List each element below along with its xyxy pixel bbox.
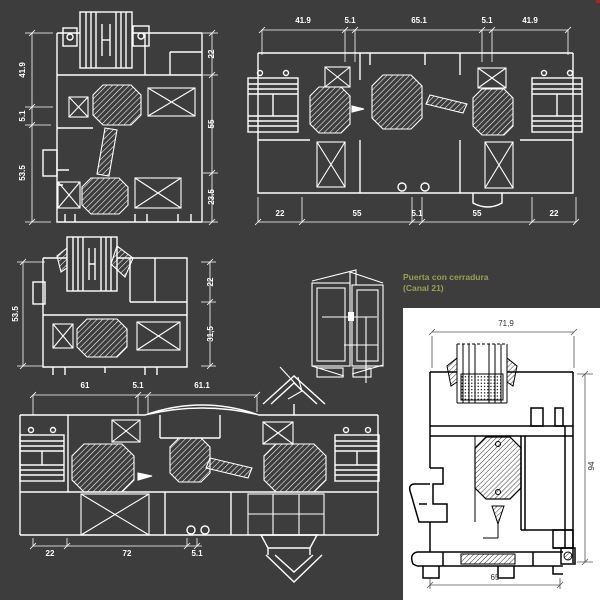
note-line-1: Puerta con cerradura <box>403 272 489 283</box>
dim-label: 65 <box>491 574 500 582</box>
profile-section-top-left-art <box>5 0 220 235</box>
dim-label: 61.1 <box>194 382 210 390</box>
note-line-2: (Canal 21) <box>403 283 489 294</box>
dim-label: 5.1 <box>344 17 355 25</box>
note-text: Puerta con cerradura (Canal 21) <box>403 272 489 294</box>
dim-label: 23.5 <box>208 189 216 205</box>
dim-label: 22 <box>208 50 216 59</box>
dim-label: 5.1 <box>411 210 422 218</box>
dim-label: 41.9 <box>522 17 538 25</box>
dim-label: 41.9 <box>295 17 311 25</box>
dim-label: 22 <box>207 278 215 287</box>
detail-panel: 71,9 94 65 <box>403 308 600 600</box>
dim-label: 22 <box>46 550 55 558</box>
dim-label: 55 <box>353 210 362 218</box>
dim-label: 55 <box>208 120 216 129</box>
dim-label: 5.1 <box>132 382 143 390</box>
catalog-page: 41.9 5.1 53.5 22 55 23.5 <box>0 0 600 600</box>
dim-label: 94 <box>588 462 596 471</box>
detail-panel-art <box>403 308 600 600</box>
profile-section-bottom-left-art <box>5 370 400 600</box>
dim-label: 31,5 <box>207 326 215 342</box>
door-handle-mark <box>348 312 354 321</box>
profile-section-middle-left: 53.5 22 31,5 <box>5 230 220 378</box>
profile-section-middle-left-art <box>5 230 220 378</box>
profile-section-top-right: 41.9 5.1 65.1 5.1 41.9 22 55 5.1 55 22 <box>230 0 600 230</box>
corner-artifact <box>596 0 600 3</box>
dim-label: 71,9 <box>498 320 514 328</box>
dim-label: 53.5 <box>19 165 27 181</box>
dim-label: 61 <box>81 382 90 390</box>
dim-label: 5.1 <box>481 17 492 25</box>
dim-label: 41.9 <box>19 62 27 78</box>
dim-label: 53.5 <box>12 306 20 322</box>
dim-label: 72 <box>123 550 132 558</box>
dim-label: 22 <box>550 210 559 218</box>
dim-label: 65.1 <box>411 17 427 25</box>
dim-label: 5.1 <box>191 550 202 558</box>
dim-label: 55 <box>473 210 482 218</box>
dim-label: 5.1 <box>19 110 27 121</box>
dim-label: 22 <box>276 210 285 218</box>
profile-section-bottom-left: 61 5.1 61.1 22 72 5.1 <box>5 370 400 600</box>
profile-section-top-right-art <box>230 0 600 230</box>
profile-section-top-left: 41.9 5.1 53.5 22 55 23.5 <box>5 0 220 235</box>
